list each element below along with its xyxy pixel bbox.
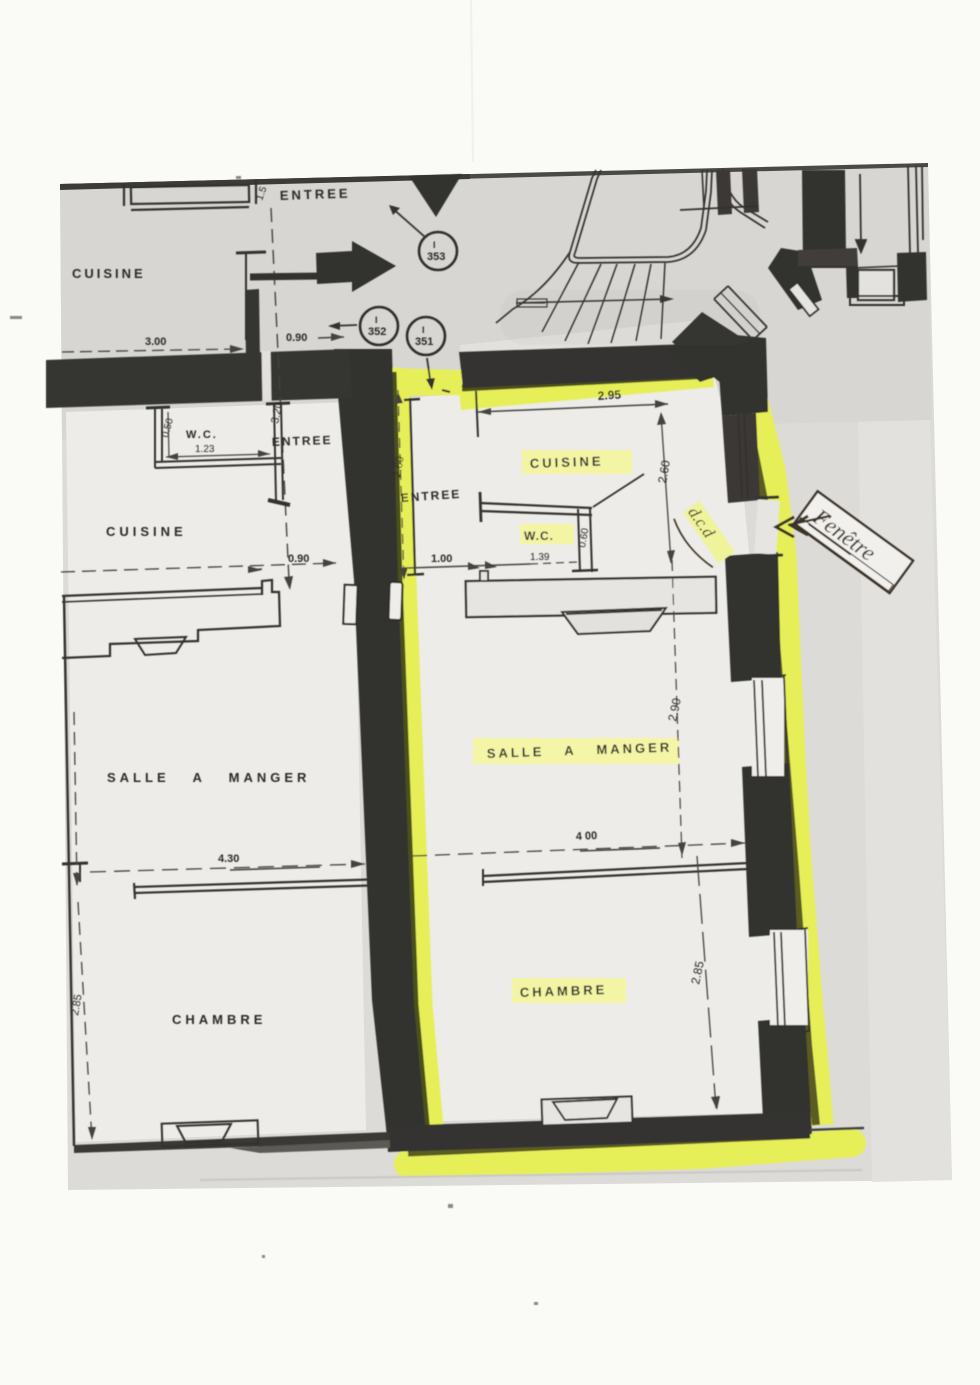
svg-text:4.30: 4.30 xyxy=(218,853,239,865)
svg-text:CUISINE: CUISINE xyxy=(72,266,146,281)
svg-text:352: 352 xyxy=(368,326,386,338)
svg-text:1.39: 1.39 xyxy=(530,552,550,563)
svg-text:ENTREE: ENTREE xyxy=(280,186,351,203)
svg-text:W.C.: W.C. xyxy=(524,529,554,543)
svg-text:3.00: 3.00 xyxy=(145,336,166,348)
svg-text:CHAMBRE: CHAMBRE xyxy=(520,982,608,1000)
svg-text:I: I xyxy=(375,315,378,325)
svg-text:4 00: 4 00 xyxy=(576,830,598,843)
svg-text:W.C.: W.C. xyxy=(186,429,218,441)
svg-text:ENTREE: ENTREE xyxy=(272,433,333,449)
svg-text:351: 351 xyxy=(415,336,433,348)
svg-text:I: I xyxy=(433,240,436,250)
svg-text:1.23: 1.23 xyxy=(195,444,215,455)
svg-text:0.90: 0.90 xyxy=(288,553,309,565)
svg-text:I: I xyxy=(422,325,425,335)
svg-text:1.00: 1.00 xyxy=(431,553,452,565)
svg-text:CUISINE: CUISINE xyxy=(530,453,604,471)
svg-text:SALLE A MANGER: SALLE A MANGER xyxy=(107,770,310,785)
svg-text:CUISINE: CUISINE xyxy=(106,524,187,539)
svg-text:353: 353 xyxy=(427,251,445,263)
svg-text:2.95: 2.95 xyxy=(597,387,622,403)
svg-text:0.90: 0.90 xyxy=(286,332,307,344)
svg-text:CHAMBRE: CHAMBRE xyxy=(172,1012,266,1027)
